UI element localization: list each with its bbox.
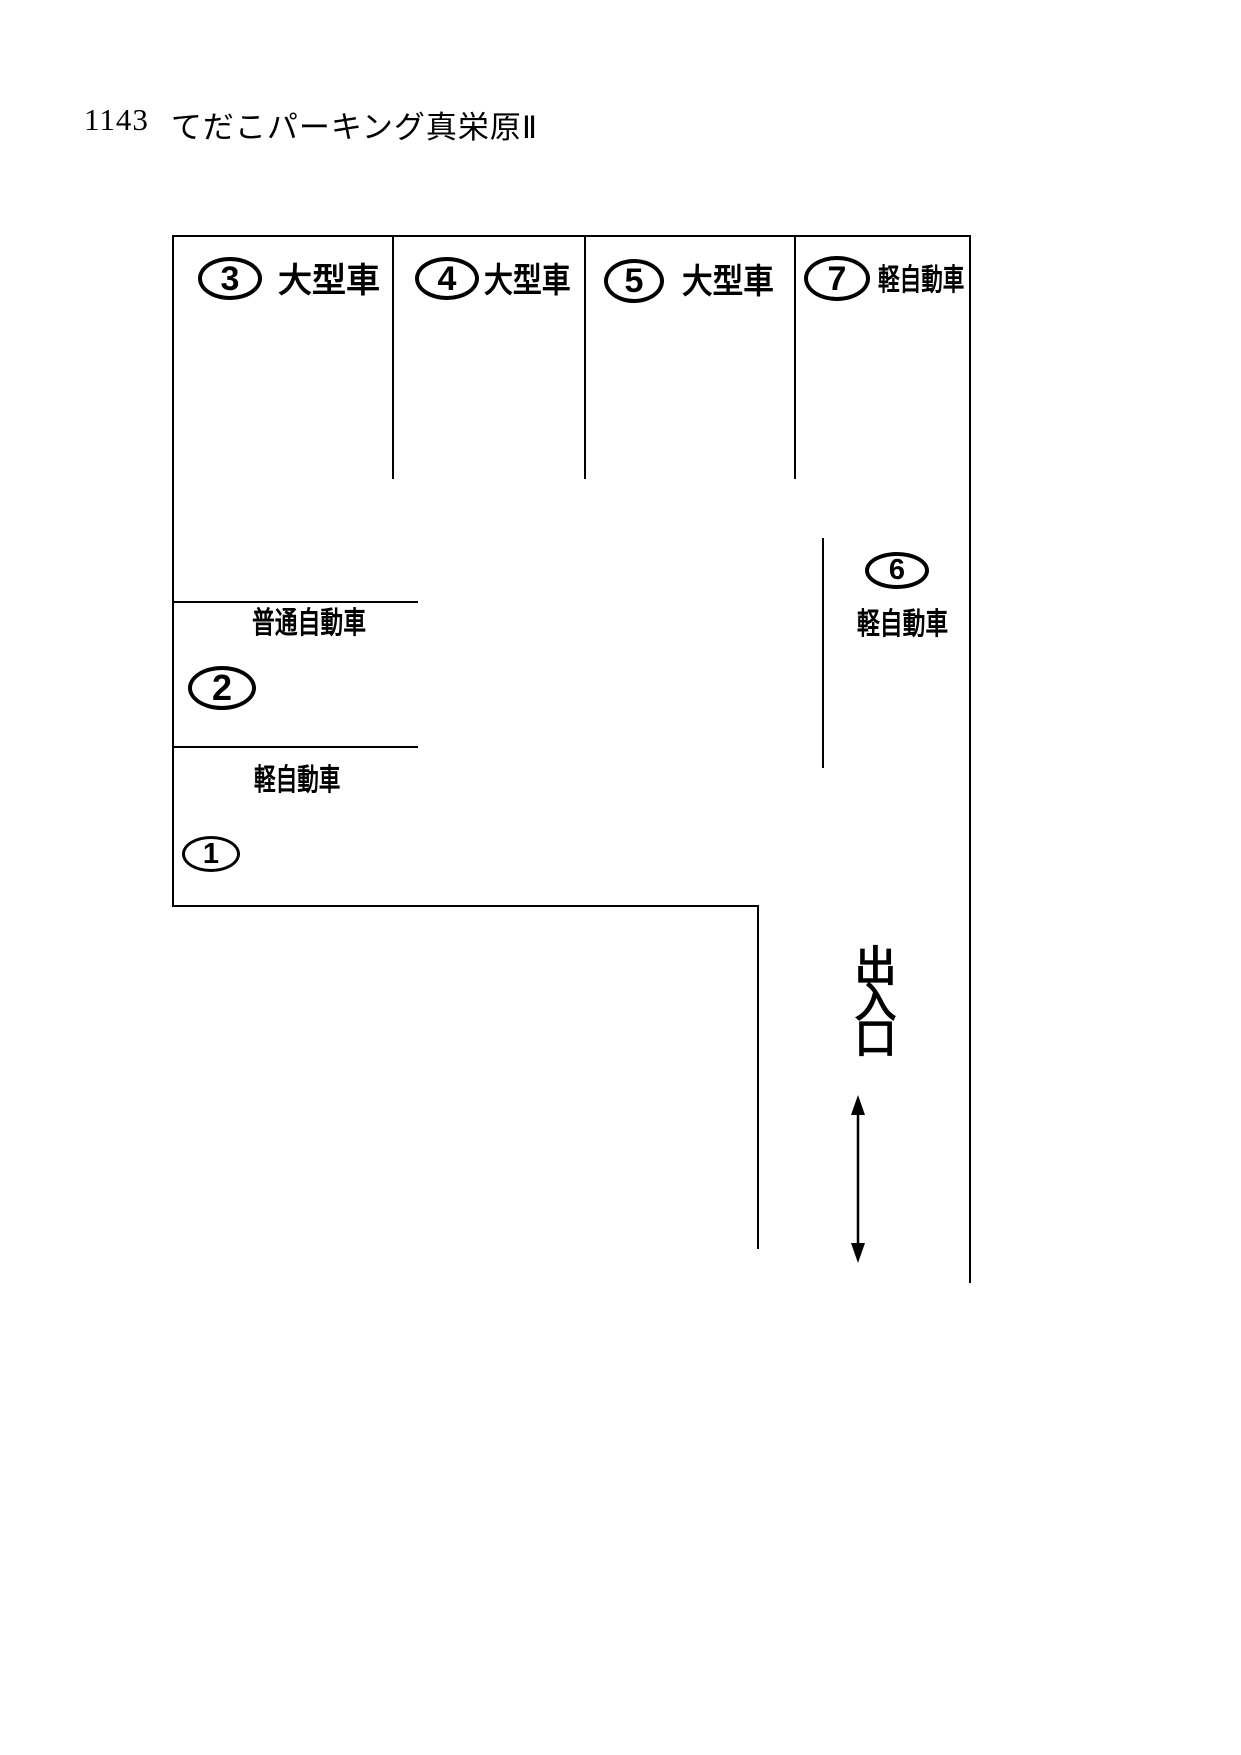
driveway-left-border [757,905,759,1249]
stall-5-number-badge: 5 [604,259,664,303]
stall2-top-line [172,601,418,603]
stall-1-number-badge: 1 [182,836,240,872]
stall1-top-line [172,746,418,748]
stall-6-number-badge: 6 [865,552,929,589]
stall-7-type-label: 軽自動車 [878,266,964,296]
stall-4-number-badge: 4 [415,257,479,300]
stall-2-type-label: 普通自動車 [252,609,366,639]
lot-top-border [172,235,971,237]
stall-6-type-label: 軽自動車 [857,610,948,640]
lot-name: てだこパーキング真栄原Ⅱ [171,102,538,147]
stall-4-type-label: 大型車 [484,264,571,298]
page-header: 1143 てだこパーキング真栄原Ⅱ [84,102,538,147]
entrance-exit-label: 出入口 [851,944,893,1052]
stall-1-type-label: 軽自動車 [254,766,340,796]
divider-stall5-stall7 [794,235,796,479]
stall-7-number-badge: 7 [804,256,870,301]
lot-right-border [969,235,971,1283]
two-way-arrow-icon [844,1094,872,1264]
divider-stall3-stall4 [392,235,394,479]
parking-map-page: 1143 てだこパーキング真栄原Ⅱ 3 大型車 4 大型車 5 大型車 7 軽自… [0,0,1241,1755]
lot-bottom-border [172,905,759,907]
lot-number: 1143 [84,102,149,147]
stall-5-type-label: 大型車 [682,265,774,299]
stall-2-number-badge: 2 [188,666,256,710]
divider-stall4-stall5 [584,235,586,479]
lot-left-border [172,235,174,907]
stall-3-number-badge: 3 [198,257,262,300]
stall6-divider-line [822,538,824,768]
stall-3-type-label: 大型車 [278,264,380,298]
